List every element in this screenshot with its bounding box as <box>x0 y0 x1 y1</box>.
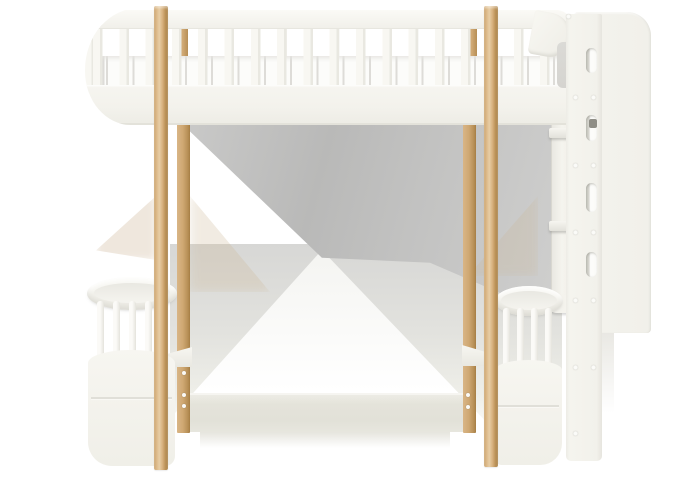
step-shadow-notch <box>589 119 597 128</box>
ladder-cutout <box>586 115 597 141</box>
screw-cap <box>591 230 596 235</box>
screw-cap <box>591 95 596 100</box>
screw-cap <box>573 163 578 168</box>
screw-cap <box>591 163 596 168</box>
screw-cap <box>573 431 578 436</box>
screw-cap <box>182 404 186 408</box>
loft-bed-product-photo <box>0 0 675 480</box>
ladder-panel-shade <box>602 333 614 413</box>
ladder-cutout <box>586 48 597 73</box>
screw-cap <box>466 405 470 409</box>
screw-cap <box>182 371 186 375</box>
screw-cap <box>573 365 578 370</box>
screw-cap <box>591 365 596 370</box>
end-base-panel <box>495 360 562 465</box>
screw-cap <box>573 230 578 235</box>
screw-cap <box>573 95 578 100</box>
front-oak-post-right <box>484 6 498 467</box>
screw-cap <box>566 14 571 19</box>
end-panel-seam <box>498 405 559 407</box>
screw-cap <box>182 393 186 397</box>
screw-cap <box>466 393 470 397</box>
ladder-cutout <box>586 252 597 277</box>
warm-reflection <box>96 196 156 260</box>
lower-bed-rail-reflection <box>200 432 450 448</box>
rear-oak-post-left <box>177 124 190 433</box>
lower-end-section-right <box>495 286 563 465</box>
screw-cap <box>573 298 578 303</box>
lower-bed-rail <box>187 393 464 432</box>
ladder-panel-front <box>566 14 602 461</box>
ladder-cutout <box>586 183 597 212</box>
screw-cap <box>591 298 596 303</box>
front-oak-post-left <box>154 6 168 470</box>
rear-oak-post-right <box>463 124 476 433</box>
